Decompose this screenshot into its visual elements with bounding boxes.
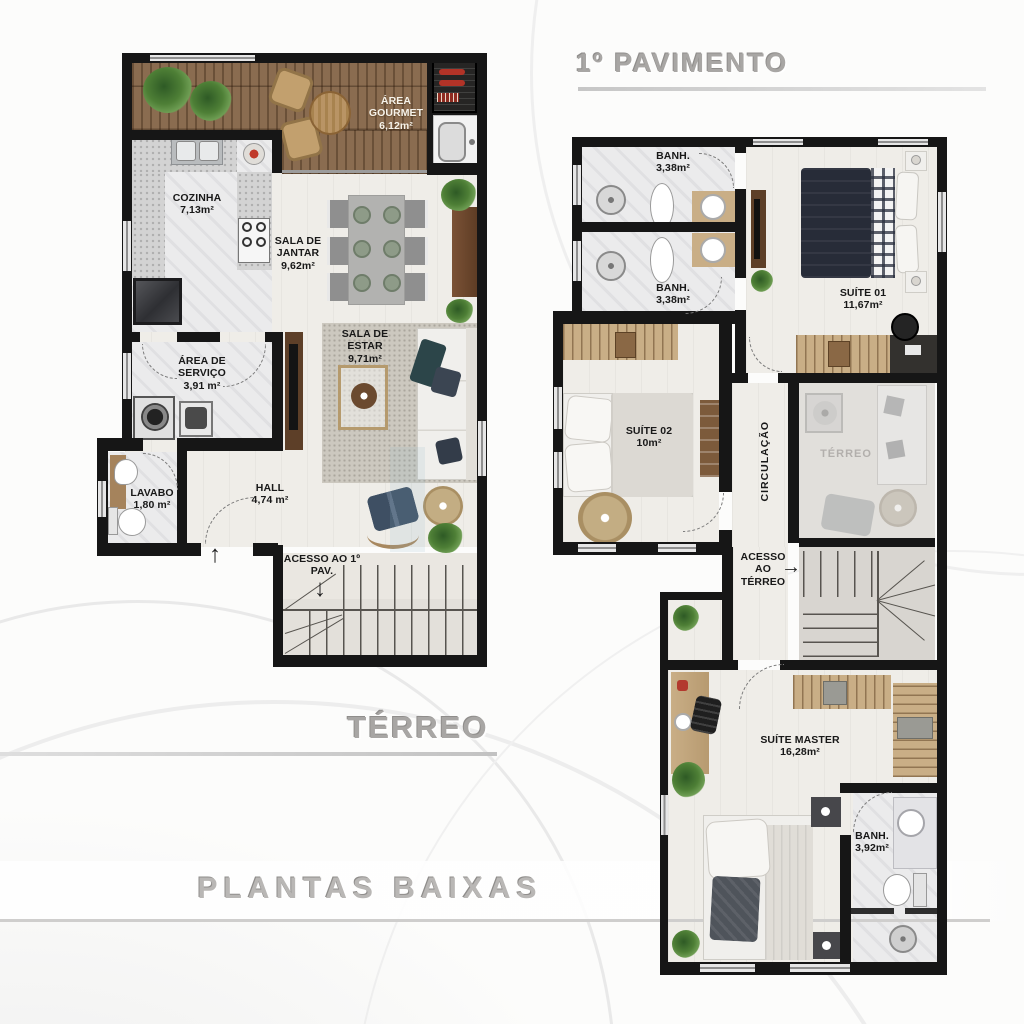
wardrobe-box xyxy=(615,332,636,358)
place-setting xyxy=(353,240,371,258)
room-area: 3,91 m² xyxy=(160,380,244,392)
faucet xyxy=(469,139,475,145)
wall xyxy=(273,655,487,667)
wall xyxy=(553,311,746,324)
wall xyxy=(660,592,733,600)
wall xyxy=(122,130,277,140)
tv xyxy=(754,199,760,259)
fruit-bowl xyxy=(243,143,265,165)
terreo-title-underline xyxy=(0,752,497,756)
laptop xyxy=(905,345,921,355)
dining-chair xyxy=(405,237,428,265)
plant xyxy=(673,605,699,631)
room-label-area-servico: ÁREA DE SERVIÇO 3,91 m² xyxy=(160,355,244,392)
room-label-suite02: SUÍTE 02 10m² xyxy=(609,425,689,450)
wall xyxy=(177,332,220,342)
room-area: 11,67m² xyxy=(821,299,905,311)
dining-chair xyxy=(405,273,428,301)
window xyxy=(573,165,581,205)
void-terreo-label: TÉRREO xyxy=(806,448,886,461)
window xyxy=(123,353,131,399)
room-name: SUÍTE MASTER xyxy=(750,734,850,746)
wall xyxy=(477,53,487,667)
room-name: BANH. xyxy=(832,830,912,842)
room-label-hall: HALL 4,74 m² xyxy=(230,482,310,507)
table-decor xyxy=(351,383,377,409)
pillow xyxy=(895,171,919,220)
window xyxy=(478,421,486,476)
grill-skewer xyxy=(439,69,465,75)
shower-drain xyxy=(596,251,626,281)
place-setting xyxy=(383,206,401,224)
wall xyxy=(553,311,563,555)
vanity-basin xyxy=(700,237,726,263)
office-chair xyxy=(891,313,919,341)
window xyxy=(938,192,946,252)
room-label-sala-estar: SALA DE ESTAR 9,71m² xyxy=(325,328,405,365)
plant xyxy=(446,299,474,323)
wardrobe-box xyxy=(897,717,933,739)
wall xyxy=(660,660,738,670)
stair-edge xyxy=(877,551,879,657)
window xyxy=(573,241,581,281)
wall xyxy=(778,373,937,383)
room-name: LAVABO xyxy=(112,487,192,499)
stair-treads xyxy=(803,551,877,597)
wall xyxy=(722,547,733,660)
lamp xyxy=(821,807,830,816)
sofa-pillow xyxy=(435,437,463,465)
deck-round-table xyxy=(309,91,351,135)
room-label-banh-master: BANH. 3,92m² xyxy=(832,830,912,855)
shower-partition xyxy=(850,908,894,914)
window xyxy=(878,139,928,145)
room-area: 9,71m² xyxy=(325,353,405,365)
room-label-suite-master: SUÍTE MASTER 16,28m² xyxy=(750,734,850,759)
bed-duvet xyxy=(765,825,813,960)
window xyxy=(658,544,696,552)
terreo-floor-plan: ÁREA GOURMET 6,12m² COZINHA 7,13m² SALA … xyxy=(95,53,487,667)
window xyxy=(700,964,755,972)
toilet-bowl xyxy=(118,508,146,536)
window xyxy=(150,55,255,61)
plant xyxy=(672,762,705,798)
room-area: 10m² xyxy=(609,437,689,449)
wardrobe-box xyxy=(828,341,850,367)
room-label-banh-inferior: BANH. 3,38m² xyxy=(633,282,713,307)
room-name: SALA DE ESTAR xyxy=(325,328,405,353)
room-name: SALA DE JANTAR xyxy=(258,235,338,260)
pavimento-title: 1º PAVIMENTO xyxy=(576,48,788,79)
room-name: BANH. xyxy=(633,150,713,162)
stair-edge xyxy=(283,609,477,611)
room-label-lavabo: LAVABO 1,80 m² xyxy=(112,487,192,512)
room-area: 4,74 m² xyxy=(230,494,310,506)
wall xyxy=(719,373,748,383)
room-name: ÁREA DE SERVIÇO xyxy=(160,355,244,380)
room-area: 3,92m² xyxy=(832,842,912,854)
pillow xyxy=(564,441,614,493)
washer-drum xyxy=(141,403,169,431)
room-label-suite01: SUÍTE 01 11,67m² xyxy=(821,287,905,312)
jute-rug xyxy=(578,492,632,544)
terreo-title: TÉRREO xyxy=(338,710,498,746)
room-label-banh-superior: BANH. 3,38m² xyxy=(633,150,713,175)
bath-sink-oval xyxy=(650,237,674,283)
wardrobe-box xyxy=(823,681,847,705)
pavimento-title-underline xyxy=(578,87,986,91)
window xyxy=(554,387,562,429)
bed-duvet-navy xyxy=(801,168,871,278)
wall xyxy=(735,137,746,153)
watermark-tint xyxy=(390,447,425,552)
place-setting xyxy=(383,274,401,292)
wall xyxy=(272,332,283,451)
room-label-cozinha: COZINHA 7,13m² xyxy=(157,192,237,217)
entrance-arrow-icon: ↑ xyxy=(209,543,221,567)
stair-treads xyxy=(803,601,877,657)
grill-skewer xyxy=(439,80,465,86)
pillow xyxy=(895,224,919,273)
mirror xyxy=(674,713,692,731)
red-vase xyxy=(677,680,688,691)
room-area: 7,13m² xyxy=(157,204,237,216)
refrigerator xyxy=(133,278,182,325)
wall xyxy=(937,137,947,975)
faded-fan xyxy=(813,401,837,425)
lamp xyxy=(911,155,921,165)
tv xyxy=(289,344,298,430)
room-label-area-gourmet: ÁREA GOURMET 6,12m² xyxy=(356,95,436,132)
wall xyxy=(122,332,140,342)
pavimento-floor-plan: BANH. 3,38m² BANH. 3,38m² SUÍTE 01 11,67… xyxy=(553,137,947,975)
sink-basin xyxy=(176,141,196,161)
dining-chair xyxy=(327,200,350,228)
vanity-basin xyxy=(700,194,726,220)
room-name: COZINHA xyxy=(157,192,237,204)
window xyxy=(753,139,803,145)
barbecue-grill xyxy=(432,59,477,113)
room-area: 1,80 m² xyxy=(112,499,192,511)
place-setting xyxy=(353,274,371,292)
dryer-door xyxy=(185,407,207,429)
room-label-sala-jantar: SALA DE JANTAR 9,62m² xyxy=(258,235,338,272)
bed-plaid xyxy=(871,168,895,278)
toilet-bowl xyxy=(883,874,911,906)
plant xyxy=(143,67,193,113)
sideboard xyxy=(452,207,478,297)
place-setting xyxy=(383,240,401,258)
window xyxy=(578,544,616,552)
plant xyxy=(428,523,464,553)
wall xyxy=(735,189,746,278)
room-name: BANH. xyxy=(633,282,713,294)
room-label-circulacao: CIRCULAÇÃO xyxy=(759,401,771,521)
wall xyxy=(177,438,277,451)
room-name: ÁREA GOURMET xyxy=(356,95,436,120)
floor-plan-sheet: ÁREA GOURMET 6,12m² COZINHA 7,13m² SALA … xyxy=(0,0,1024,1024)
pillow xyxy=(564,395,614,444)
burner xyxy=(242,237,252,247)
lavabo-sink xyxy=(114,459,138,485)
shower-drain xyxy=(889,925,917,953)
plant xyxy=(751,270,773,292)
lamp xyxy=(911,276,921,286)
window xyxy=(661,795,668,835)
window xyxy=(123,221,131,271)
wall xyxy=(780,660,937,670)
dining-chair xyxy=(327,273,350,301)
burner xyxy=(256,222,266,232)
faded-armchair xyxy=(820,493,875,537)
faded-pillow xyxy=(883,395,904,416)
shower-drain xyxy=(596,185,626,215)
faded-pillow xyxy=(886,440,906,460)
wall xyxy=(272,130,282,173)
place-setting xyxy=(353,206,371,224)
stair-treads xyxy=(343,565,477,609)
room-name: HALL xyxy=(230,482,310,494)
sliding-door xyxy=(282,170,427,173)
lamp xyxy=(822,941,831,950)
wall xyxy=(97,543,187,556)
sink-basin xyxy=(199,141,219,161)
room-area: 3,38m² xyxy=(633,162,713,174)
jute-rug xyxy=(423,486,463,526)
room-area: 9,62m² xyxy=(258,260,338,272)
window xyxy=(554,452,562,488)
burner xyxy=(242,222,252,232)
room-name: SUÍTE 02 xyxy=(609,425,689,437)
room-name: TÉRREO xyxy=(806,448,886,461)
wall xyxy=(187,543,201,556)
wall xyxy=(660,592,668,660)
grill-grate xyxy=(437,93,459,102)
room-name: SUÍTE 01 xyxy=(821,287,905,299)
wall xyxy=(788,383,799,543)
shower-partition xyxy=(905,908,937,914)
wall xyxy=(799,538,935,547)
room-area: 3,38m² xyxy=(633,294,713,306)
bed-throw xyxy=(709,876,760,942)
toilet-tank xyxy=(913,873,927,907)
desk-shelf xyxy=(700,400,719,477)
pillow xyxy=(705,818,771,880)
outdoor-sink-basin xyxy=(438,122,466,162)
kitchen-counter xyxy=(132,172,165,278)
room-area: 16,28m² xyxy=(750,746,850,758)
wall xyxy=(719,324,732,492)
faded-rug xyxy=(879,489,917,527)
dining-chair xyxy=(405,200,428,228)
room-area: 6,12m² xyxy=(356,120,436,132)
wall xyxy=(582,222,735,232)
right-arrow-icon: → xyxy=(781,557,801,577)
footer-title: PLANTAS BAIXAS xyxy=(150,872,590,906)
down-arrow-icon: ↓ xyxy=(314,577,326,601)
room-name: CIRCULAÇÃO xyxy=(759,401,771,521)
plant xyxy=(672,930,700,958)
window xyxy=(98,481,106,517)
plant xyxy=(441,179,477,211)
plant xyxy=(190,81,232,121)
window xyxy=(790,964,850,972)
